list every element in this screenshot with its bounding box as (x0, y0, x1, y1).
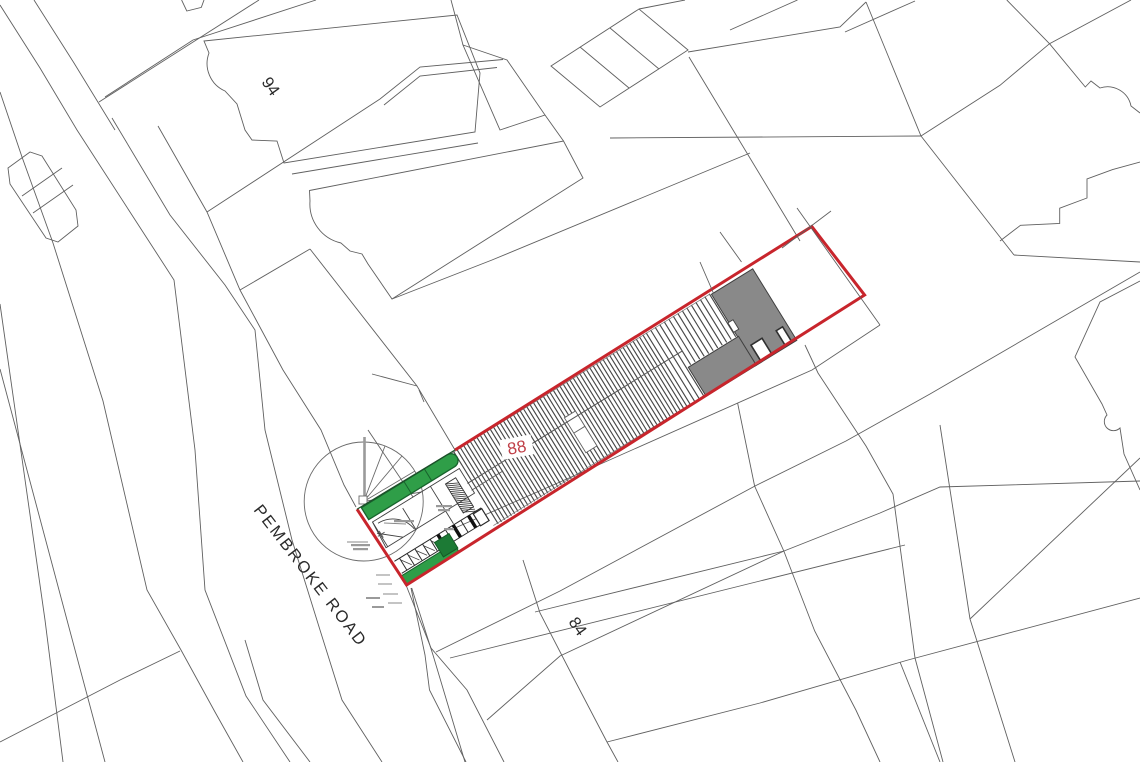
svg-text:88: 88 (506, 437, 528, 459)
svg-text:94: 94 (258, 74, 283, 99)
svg-text:PEMBROKE ROAD: PEMBROKE ROAD (250, 501, 371, 650)
svg-text:84: 84 (565, 614, 590, 639)
